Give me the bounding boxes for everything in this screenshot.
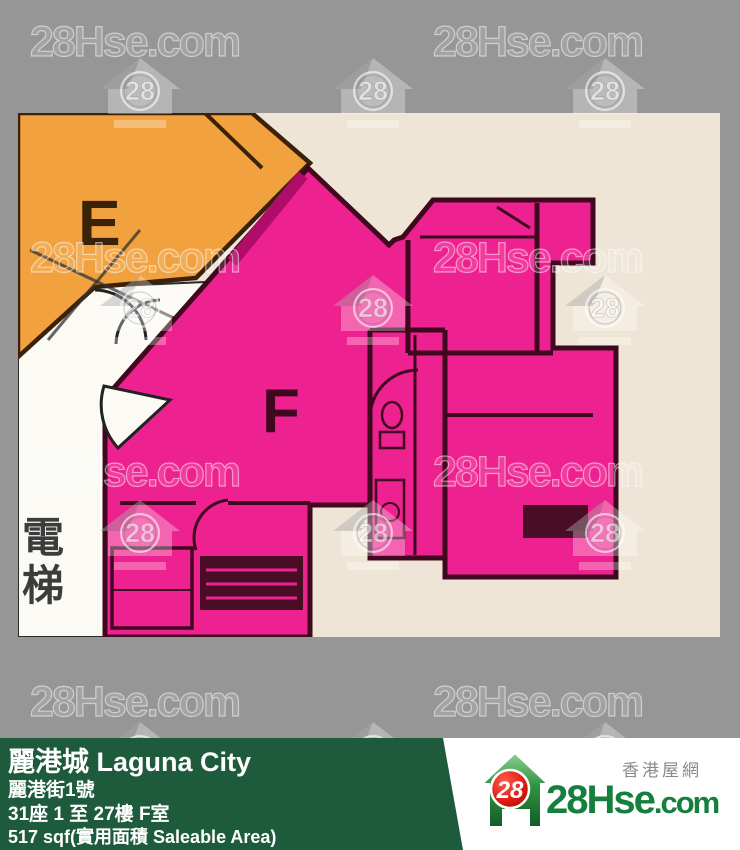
watermark-text: 28Hse.com bbox=[30, 678, 239, 726]
estate-address: 麗港街1號 bbox=[8, 775, 95, 802]
logo-brand-main: 28Hse bbox=[546, 778, 654, 822]
footer-bar: 麗港城 Laguna City 麗港街1號 31座 1 至 27樓 F室 517… bbox=[0, 738, 740, 850]
floorplan-svg: E F 電 梯 bbox=[18, 113, 720, 637]
unit-e-label: E bbox=[78, 187, 121, 259]
logo-badge-number: 28 bbox=[496, 777, 524, 804]
house-logo-icon: 28 bbox=[480, 751, 550, 831]
floorplan-image: E F 電 梯 bbox=[18, 113, 720, 637]
watermark-text: 28Hse.com bbox=[30, 18, 239, 66]
saleable-area: 517 sqf(實用面積 Saleable Area) bbox=[8, 823, 276, 849]
lift-label-char-2: 梯 bbox=[22, 562, 64, 609]
logo-brand-suffix: .com bbox=[654, 785, 718, 820]
watermark-text: 28Hse.com bbox=[433, 678, 642, 726]
property-info-panel: 麗港城 Laguna City 麗港街1號 31座 1 至 27樓 F室 517… bbox=[0, 738, 480, 850]
lift-label-char-1: 電 bbox=[22, 514, 64, 561]
bed-block bbox=[523, 505, 588, 538]
unit-f-label: F bbox=[262, 377, 300, 446]
unit-description: 31座 1 至 27樓 F室 bbox=[8, 799, 170, 826]
page: E F 電 梯 2828Hse.com28Hse.com28Hse.com28H… bbox=[0, 0, 740, 850]
watermark-text: 28Hse.com bbox=[433, 18, 642, 66]
logo-brand-text: 28Hse.com bbox=[546, 778, 718, 823]
site-logo[interactable]: 28 28Hse.com 香港屋網 bbox=[478, 748, 733, 843]
kitchen-stove bbox=[200, 556, 303, 610]
estate-name: 麗港城 Laguna City bbox=[8, 740, 251, 779]
logo-tagline: 香港屋網 bbox=[622, 756, 702, 781]
